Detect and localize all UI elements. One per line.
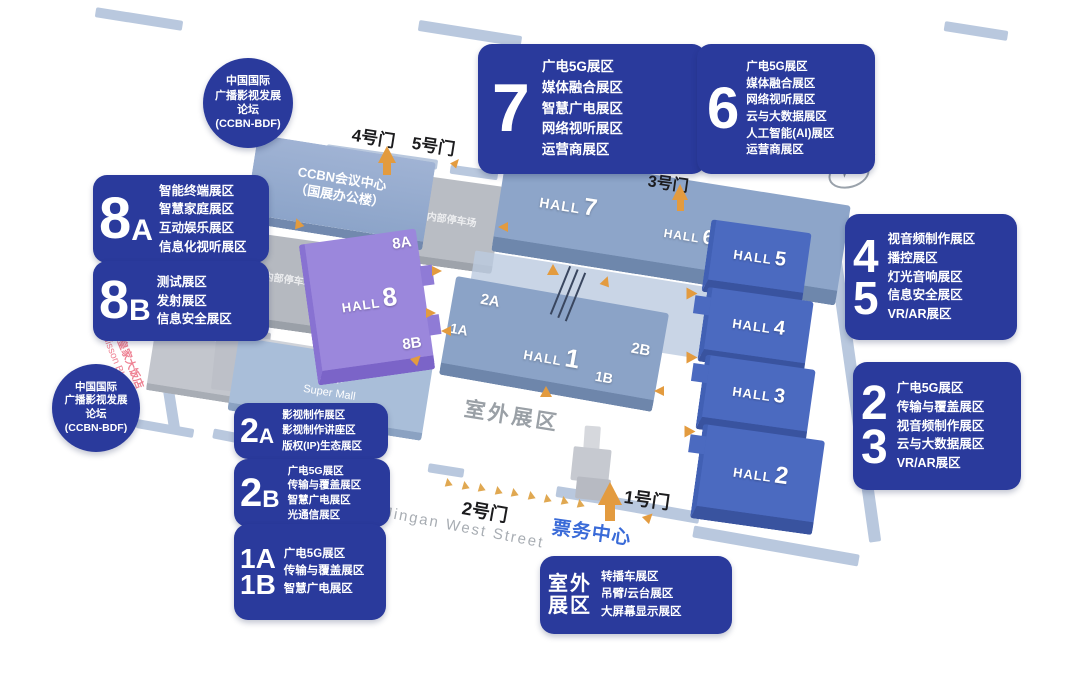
- legend-outdoor-lines: 转播车展区 吊臂/云台展区 大屏幕显示展区: [601, 569, 682, 621]
- direction-arrow-icon: [547, 264, 559, 275]
- legend-hall45-numbers: 4 5: [853, 235, 879, 320]
- gate-5-label: 5号门: [410, 129, 457, 160]
- direction-arrow-icon: [654, 386, 664, 396]
- legend-hall2a: 2A 影视制作展区 影视制作讲座区 版权(IP)生态展区: [234, 403, 388, 459]
- forum-badge: 中国国际 广播影视发展 论坛 (CCBN-BDF): [203, 58, 293, 148]
- hall-6-prefix: HALL: [663, 226, 701, 245]
- direction-arrow-icon: [540, 386, 552, 397]
- legend-hall8a-number: 8A: [99, 194, 153, 243]
- path-chevron-icon: [493, 485, 502, 494]
- legend-hall8a: 8A 智能终端展区 智慧家庭展区 互动娱乐展区 信息化视听展区: [93, 175, 269, 263]
- outdoor-area-label: 室外展区: [462, 393, 562, 438]
- parking-label: 内部停车场: [426, 210, 477, 230]
- legend-hall23-number-3: 3: [861, 426, 888, 470]
- legend-outdoor-title-2: 展区: [548, 595, 592, 617]
- path-chevron-icon: [460, 480, 469, 489]
- direction-arrow-icon: [672, 184, 688, 211]
- hall-1-name: HALL 1: [522, 335, 583, 375]
- legend-outdoor: 室外 展区 转播车展区 吊臂/云台展区 大屏幕显示展区: [540, 556, 732, 634]
- legend-hall2b: 2B 广电5G展区 传输与覆盖展区 智慧广电展区 光通信展区: [234, 459, 390, 527]
- hall-5-number: 5: [773, 247, 787, 271]
- legend-hall8b-lines: 测试展区 发射展区 信息安全展区: [157, 273, 232, 329]
- legend-hall1ab-lines: 广电5G展区 传输与覆盖展区 智慧广电展区: [284, 546, 365, 598]
- legend-hall2a-letter: A: [259, 428, 274, 446]
- path-chevron-icon: [559, 496, 568, 505]
- legend-hall23-number-2: 2: [861, 382, 888, 426]
- legend-hall8a-letter: A: [131, 218, 153, 244]
- hall-8-prefix: HALL: [341, 295, 381, 315]
- road: [428, 463, 465, 478]
- legend-hall1ab-numbers: 1A 1B: [240, 546, 276, 598]
- direction-arrow-icon: [426, 308, 436, 318]
- legend-hall8b-number: 8B: [99, 278, 151, 324]
- hall-3-number: 3: [772, 384, 786, 408]
- hall-5-prefix: HALL: [733, 246, 773, 266]
- legend-hall2b-number: 2B: [240, 476, 280, 510]
- legend-hall23-lines: 广电5G展区 传输与覆盖展区 视音频制作展区 云与大数据展区 VR/AR展区: [897, 379, 985, 473]
- hall-2-name: HALL 2: [732, 456, 790, 491]
- legend-hall2b-letter: B: [262, 490, 279, 510]
- legend-hall23: 2 3 广电5G展区 传输与覆盖展区 视音频制作展区 云与大数据展区 VR/AR…: [853, 362, 1021, 490]
- legend-hall2a-digit: 2: [240, 417, 259, 446]
- legend-hall45: 4 5 视音频制作展区 播控展区 灯光音响展区 信息安全展区 VR/AR展区: [845, 214, 1017, 340]
- hall-7-name: HALL 7: [538, 186, 599, 223]
- legend-hall8a-digit: 8: [99, 194, 131, 243]
- legend-hall2b-lines: 广电5G展区 传输与覆盖展区 智慧广电展区 光通信展区: [288, 464, 362, 523]
- legend-hall45-lines: 视音频制作展区 播控展区 灯光音响展区 信息安全展区 VR/AR展区: [888, 230, 976, 324]
- hall-2: HALL 2: [690, 424, 825, 535]
- direction-arrow-icon: [378, 146, 396, 175]
- legend-hall7-lines: 广电5G展区 媒体融合展区 智慧广电展区 网络视听展区 运营商展区: [542, 57, 623, 162]
- hall-3-name: HALL 3: [731, 378, 786, 408]
- hall-4-number: 4: [772, 316, 786, 340]
- path-chevron-icon: [509, 488, 518, 497]
- legend-hall6-lines: 广电5G展区 媒体融合展区 网络视听展区 云与大数据展区 人工智能(AI)展区 …: [746, 59, 834, 159]
- hall-4-name: HALL 4: [731, 310, 786, 340]
- legend-hall8b-letter: B: [129, 298, 151, 324]
- hall-1-zone-1b: 1B: [594, 368, 614, 387]
- legend-hall7-number: 7: [492, 80, 530, 138]
- conference-center-label: CCBN会议中心 （国展办公楼）: [293, 164, 388, 212]
- boundary-wall: [418, 20, 522, 47]
- forum-badge: 中国国际 广播影视发展 论坛 (CCBN-BDF): [52, 364, 140, 452]
- direction-arrow-icon: [498, 222, 508, 232]
- legend-hall2a-number: 2A: [240, 417, 274, 446]
- legend-hall8b: 8B 测试展区 发射展区 信息安全展区: [93, 261, 269, 341]
- road: [136, 419, 195, 438]
- direction-arrow-icon: [687, 352, 698, 364]
- super-mall-label-en: Super Mall: [302, 382, 356, 404]
- hall-4-prefix: HALL: [732, 315, 772, 335]
- hall-1-zone-2a: 2A: [479, 291, 501, 311]
- boundary-wall: [95, 7, 183, 31]
- hall-7-number: 7: [581, 193, 599, 223]
- legend-hall45-number-5: 5: [853, 277, 879, 319]
- direction-arrow-icon: [598, 482, 622, 521]
- hall-1-prefix: HALL: [522, 347, 563, 368]
- legend-hall1ab-number-1b: 1B: [240, 572, 276, 598]
- legend-hall45-number-4: 4: [853, 235, 879, 277]
- legend-outdoor-title: 室外 展区: [548, 573, 592, 617]
- path-chevron-icon: [526, 490, 535, 499]
- direction-arrow-icon: [432, 266, 442, 276]
- legend-hall2a-lines: 影视制作展区 影视制作讲座区 版权(IP)生态展区: [282, 408, 362, 454]
- hall-8-zone-8a: 8A: [391, 233, 412, 253]
- legend-hall23-numbers: 2 3: [861, 382, 888, 470]
- legend-hall8a-lines: 智能终端展区 智慧家庭展区 互动娱乐展区 信息化视听展区: [159, 182, 247, 257]
- hall-1-zone-1a: 1A: [449, 320, 469, 339]
- hall-1-number: 1: [563, 342, 583, 375]
- hall-8-name: HALL 8: [339, 280, 399, 319]
- legend-outdoor-title-1: 室外: [548, 573, 592, 595]
- legend-hall2b-digit: 2: [240, 476, 262, 510]
- path-chevron-icon: [542, 493, 551, 502]
- hall-2-prefix: HALL: [732, 465, 772, 485]
- hall-7-prefix: HALL: [538, 194, 581, 216]
- direction-arrow-icon: [441, 326, 451, 336]
- legend-hall7: 7 广电5G展区 媒体融合展区 智慧广电展区 网络视听展区 运营商展区: [478, 44, 706, 174]
- hall-1-zone-2b: 2B: [630, 340, 652, 360]
- exhibition-map: CCBN会议中心 （国展办公楼） 内部停车场 内部停车场 8A HALL 8 8…: [0, 0, 1080, 683]
- path-chevron-icon: [476, 483, 485, 492]
- hall-2-number: 2: [773, 462, 790, 492]
- hall-5-name: HALL 5: [732, 241, 787, 271]
- direction-arrow-icon: [685, 426, 696, 438]
- hall-3-dock: [691, 363, 709, 383]
- legend-hall1ab: 1A 1B 广电5G展区 传输与覆盖展区 智慧广电展区: [234, 524, 386, 620]
- legend-hall8b-digit: 8: [99, 278, 129, 324]
- hall-8-zone-8b: 8B: [401, 334, 422, 354]
- path-chevron-icon: [443, 477, 452, 486]
- legend-hall6-number: 6: [707, 84, 739, 133]
- boundary-wall: [944, 21, 1009, 41]
- direction-arrow-icon: [687, 288, 698, 300]
- hall-8-number: 8: [380, 280, 399, 313]
- path-chevron-icon: [575, 498, 584, 507]
- hall-3-prefix: HALL: [732, 383, 772, 403]
- legend-hall6: 6 广电5G展区 媒体融合展区 网络视听展区 云与大数据展区 人工智能(AI)展…: [697, 44, 875, 174]
